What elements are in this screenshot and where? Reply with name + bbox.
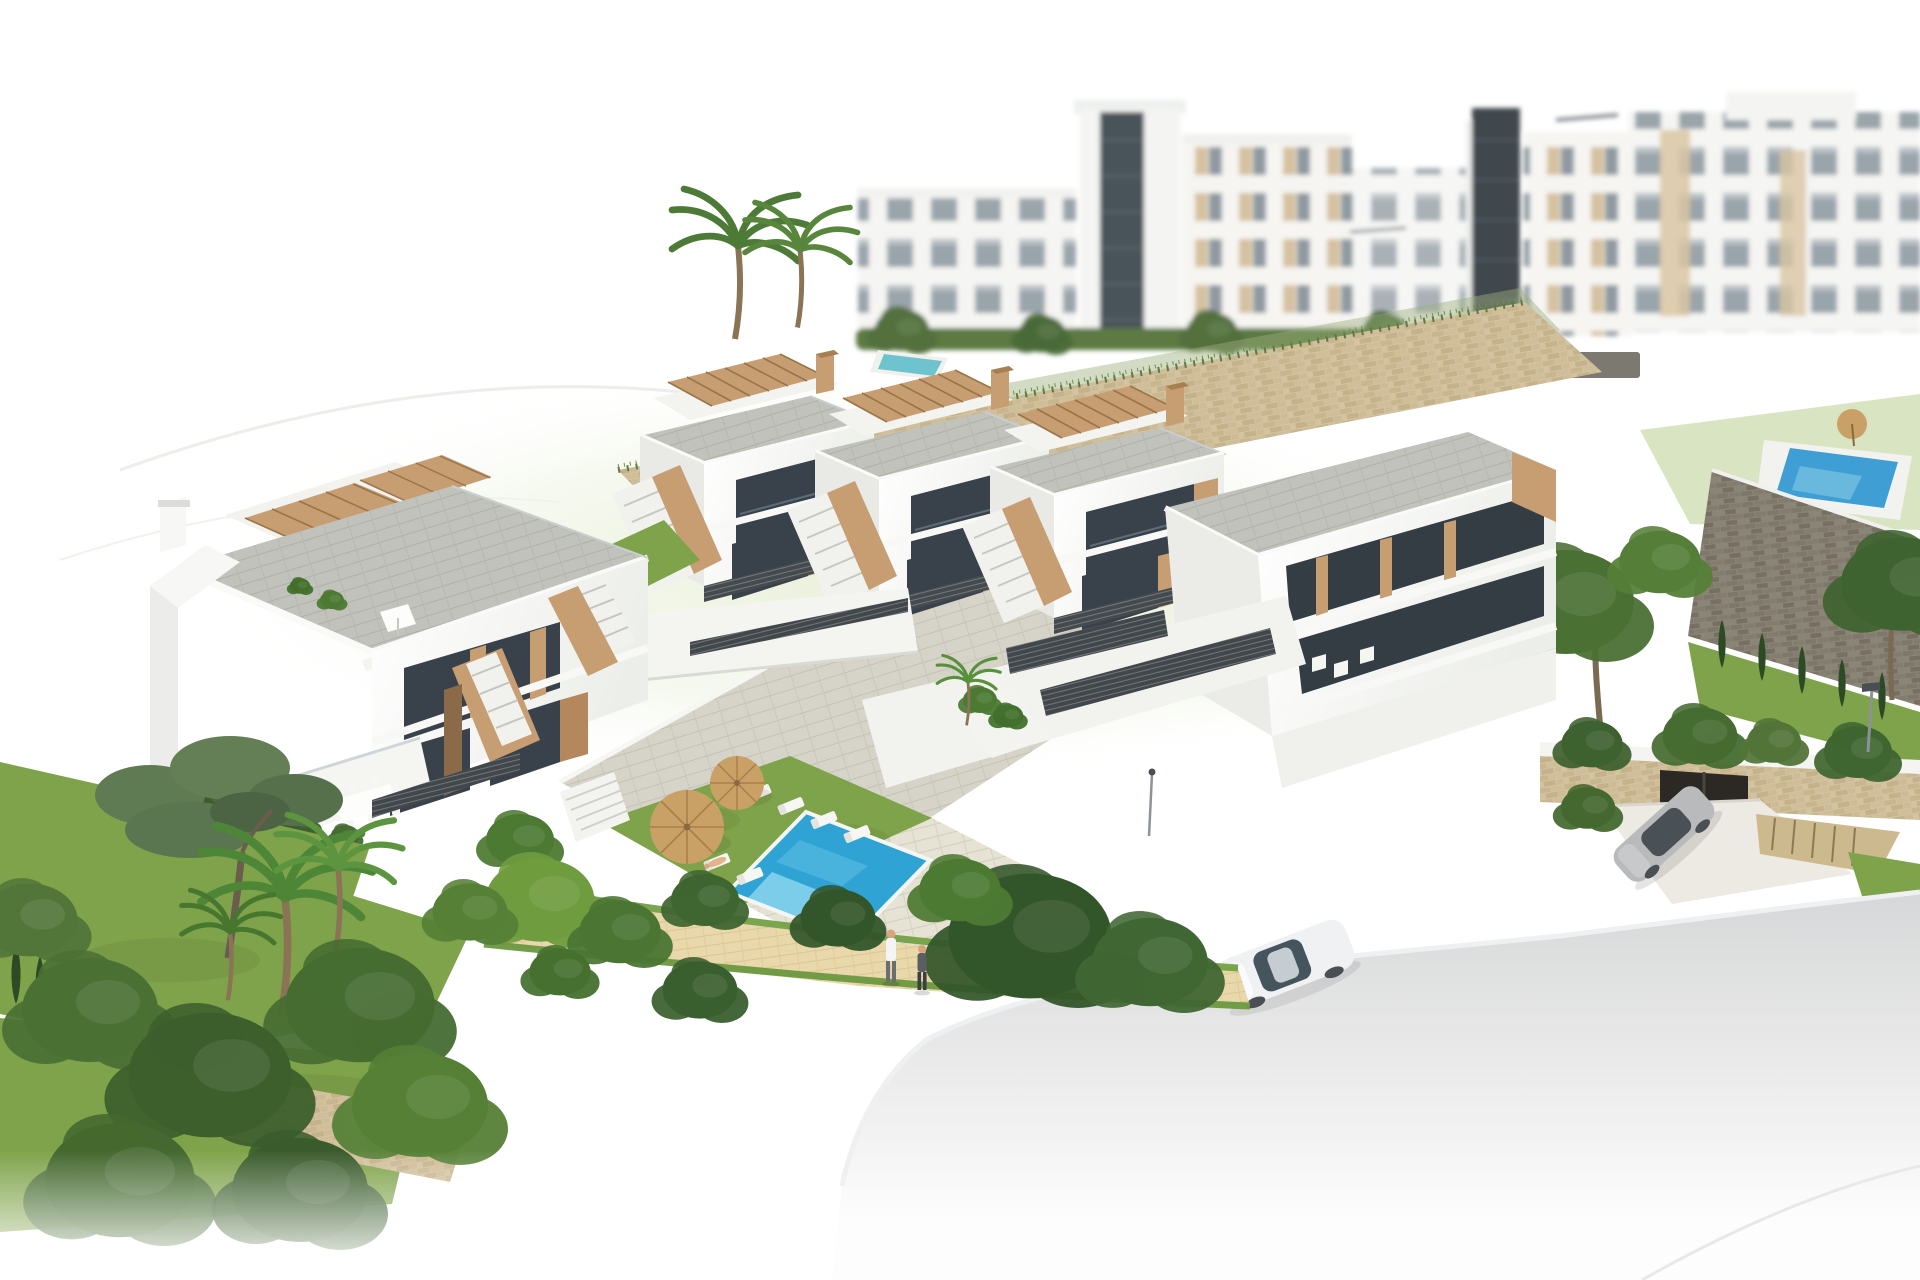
render-canvas: Computer-generated aerial rendering of a… [0,0,1920,1280]
architectural-render [0,0,1920,1280]
